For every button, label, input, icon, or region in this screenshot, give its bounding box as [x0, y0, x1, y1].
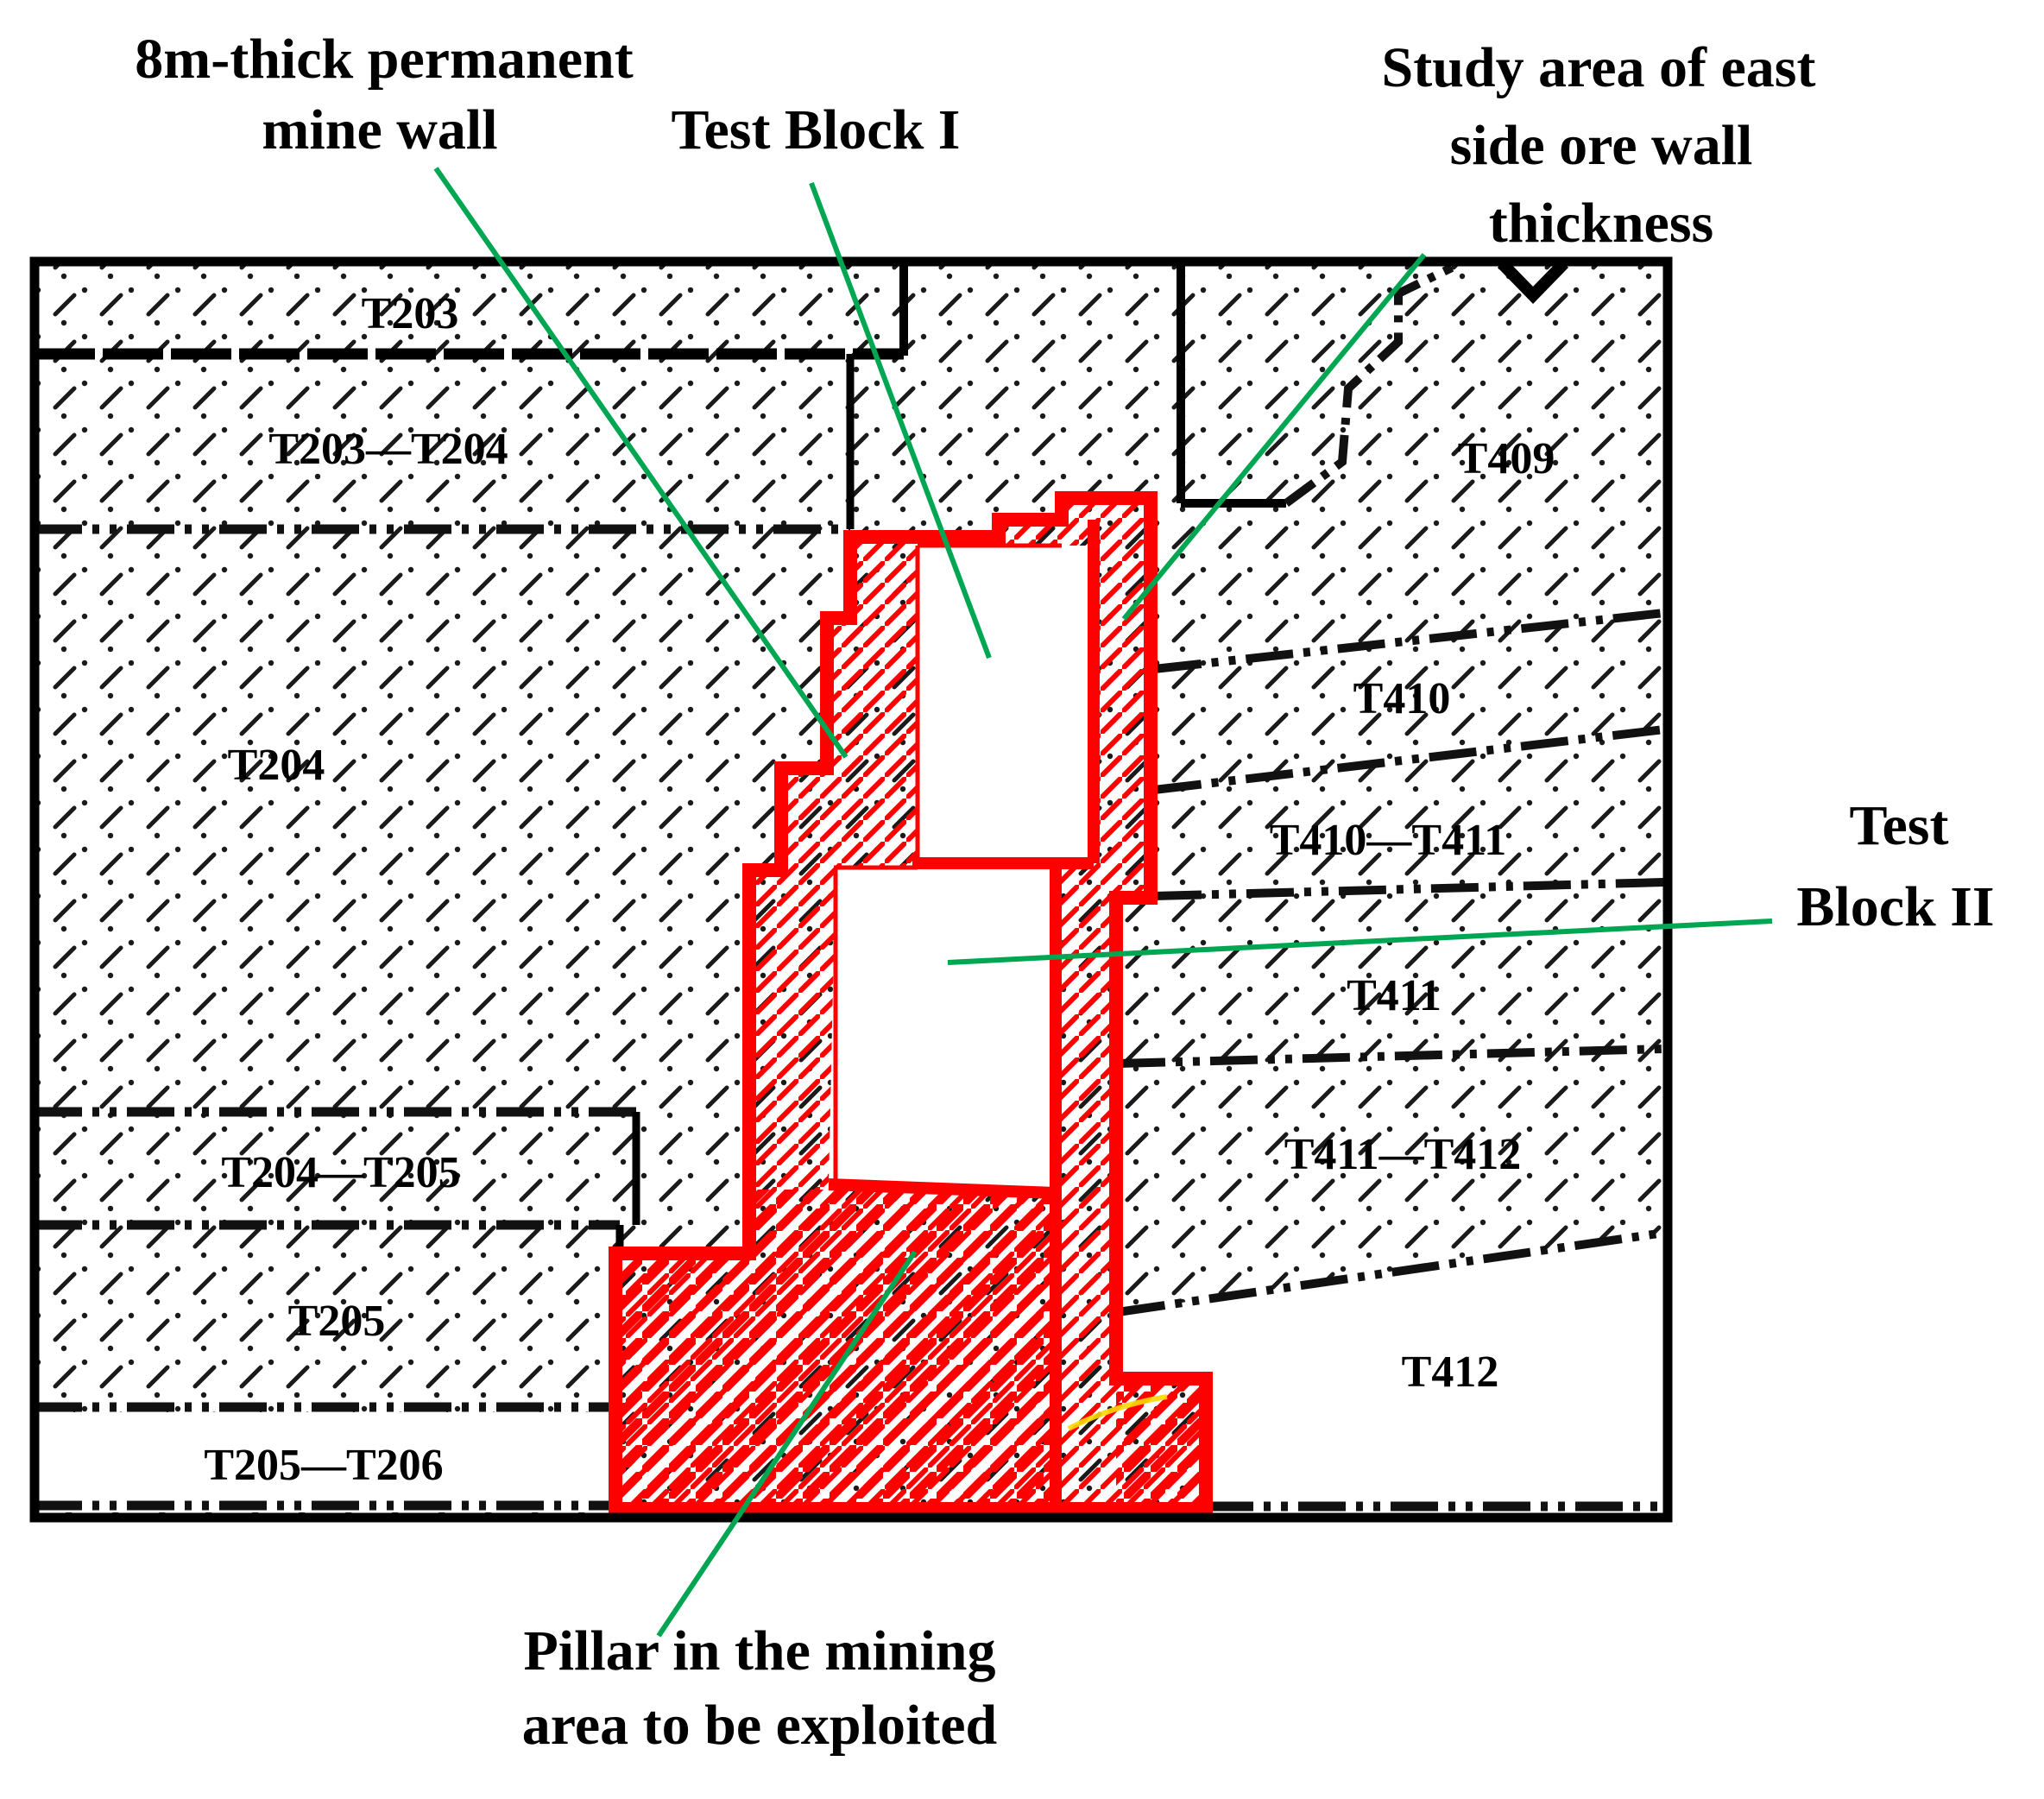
region-label-t205-t206: T205—T206 — [204, 1441, 443, 1490]
label-pillar-line2: area to be exploited — [522, 1694, 998, 1757]
label-pillar-line1: Pillar in the mining — [523, 1619, 995, 1682]
region-label-t412: T412 — [1402, 1348, 1499, 1397]
test-block-1-area — [918, 546, 1094, 863]
label-study-area-line1: Study area of east — [1382, 36, 1816, 99]
block2-bottom-edge — [829, 1184, 1056, 1193]
label-permanent-wall-line2: mine wall — [262, 98, 497, 161]
region-label-t204-t205: T204—T205 — [221, 1148, 460, 1197]
region-label-t410-t411: T410—T411 — [1270, 816, 1507, 865]
label-study-area-line2: side ore wall — [1450, 114, 1753, 177]
region-label-t203-t204: T203—T204 — [268, 425, 508, 474]
region-label-t203: T203 — [362, 289, 459, 338]
region-label-t204: T204 — [228, 741, 325, 790]
region-label-t409: T409 — [1458, 434, 1555, 483]
mine-plan-svg: T203 T203—T204 T204 T204—T205 T205 T205—… — [0, 0, 2044, 1799]
test-block-2-area — [829, 868, 1056, 1193]
mine-plan-figure: T203 T203—T204 T204 T204—T205 T205 T205—… — [0, 0, 2044, 1799]
label-test-block-2-line2: Block II — [1796, 875, 1994, 938]
region-label-t205: T205 — [288, 1297, 386, 1346]
label-test-block-1: Test Block I — [672, 98, 961, 161]
label-permanent-wall-line1: 8m-thick permanent — [135, 28, 633, 91]
region-label-t410: T410 — [1353, 674, 1451, 723]
region-label-t411: T411 — [1347, 971, 1442, 1020]
label-study-area-line3: thickness — [1489, 192, 1713, 255]
region-label-t411-t412: T411—T412 — [1284, 1130, 1522, 1179]
label-test-block-2-line1: Test — [1850, 794, 1949, 857]
